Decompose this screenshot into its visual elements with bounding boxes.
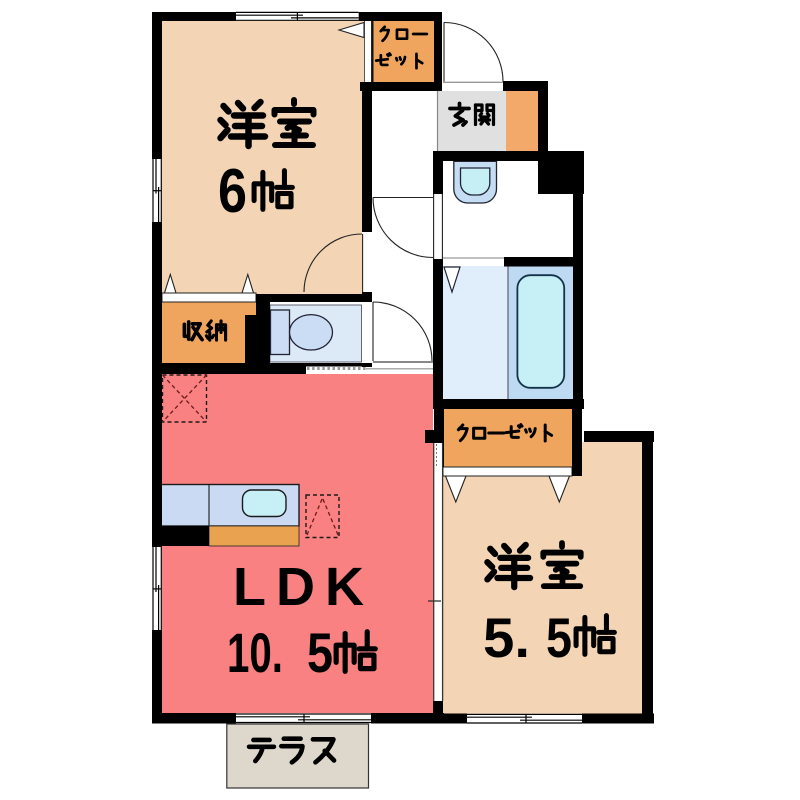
svg-text:10.: 10.: [227, 621, 283, 684]
svg-text:5: 5: [307, 621, 333, 684]
svg-text:5: 5: [546, 606, 572, 669]
svg-text:5.: 5.: [483, 606, 530, 669]
svg-text:LDK: LDK: [233, 557, 374, 617]
svg-text:6: 6: [218, 157, 247, 226]
